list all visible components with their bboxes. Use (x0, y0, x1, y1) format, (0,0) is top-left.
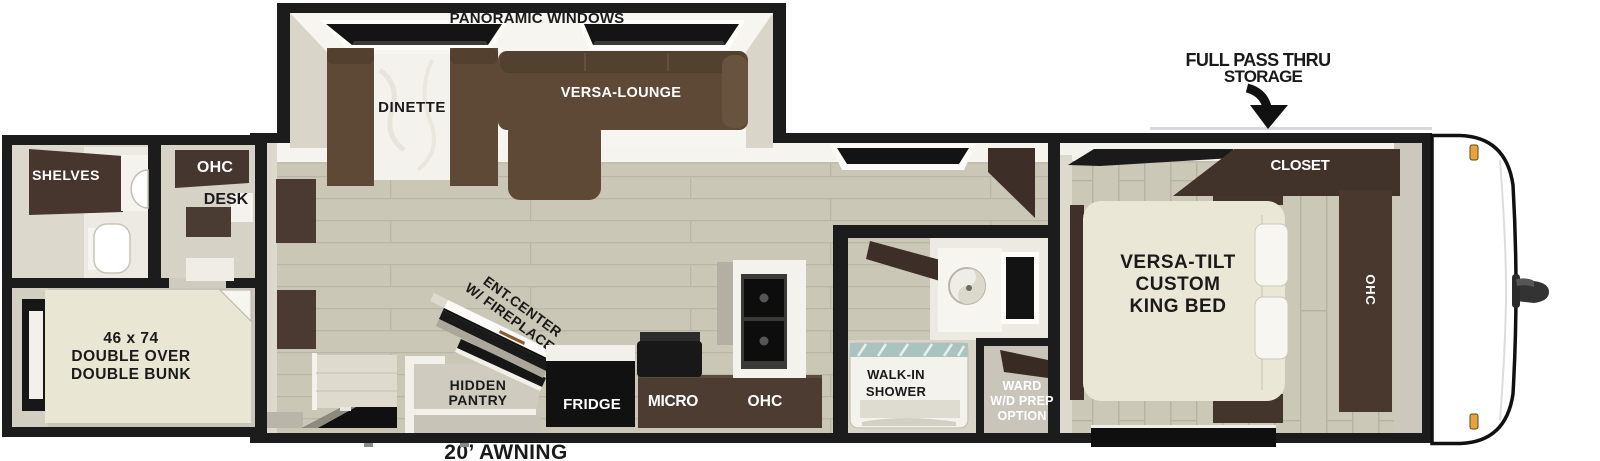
svg-text:VERSA-TILT: VERSA-TILT (1120, 252, 1235, 273)
svg-text:DOUBLE BUNK: DOUBLE BUNK (71, 366, 191, 383)
svg-text:DESK: DESK (204, 191, 249, 208)
svg-text:OHC: OHC (1363, 274, 1378, 305)
svg-text:HIDDEN: HIDDEN (450, 377, 507, 393)
svg-text:PANTRY: PANTRY (449, 392, 508, 408)
svg-text:DOUBLE OVER: DOUBLE OVER (71, 348, 190, 365)
svg-text:OHC: OHC (197, 159, 233, 176)
svg-text:FRIDGE: FRIDGE (563, 396, 621, 413)
svg-text:WALK-IN: WALK-IN (867, 367, 925, 382)
svg-text:VERSA-LOUNGE: VERSA-LOUNGE (561, 85, 681, 101)
svg-text:SHELVES: SHELVES (32, 167, 100, 183)
svg-text:MICRO: MICRO (648, 393, 698, 410)
svg-text:46 x 74: 46 x 74 (103, 330, 158, 347)
svg-text:W/D PREP: W/D PREP (990, 394, 1053, 408)
svg-text:CUSTOM: CUSTOM (1136, 274, 1221, 295)
svg-text:KING BED: KING BED (1130, 296, 1227, 317)
svg-text:OPTION: OPTION (997, 409, 1046, 423)
svg-text:OHC: OHC (747, 393, 782, 410)
svg-text:STORAGE: STORAGE (1224, 67, 1303, 86)
svg-text:SHOWER: SHOWER (866, 384, 927, 399)
svg-text:DINETTE: DINETTE (378, 99, 446, 116)
svg-text:CLOSET: CLOSET (1270, 157, 1329, 174)
svg-text:PANORAMIC WINDOWS: PANORAMIC WINDOWS (450, 10, 625, 27)
svg-text:WARD: WARD (1003, 379, 1042, 393)
